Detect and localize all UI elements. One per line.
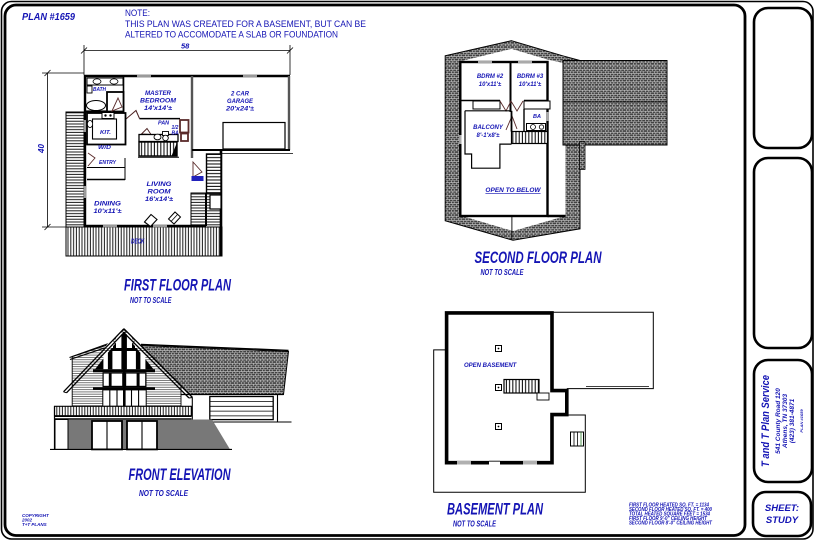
svg-text:40: 40 <box>37 144 46 154</box>
svg-text:20'x24'±: 20'x24'± <box>225 106 255 113</box>
svg-text:NOTE:: NOTE: <box>125 8 150 18</box>
svg-text:BATH: BATH <box>93 87 107 93</box>
svg-text:10'x11'±: 10'x11'± <box>519 82 542 88</box>
svg-text:KIT.: KIT. <box>100 130 112 136</box>
svg-text:BALCONY: BALCONY <box>473 125 504 131</box>
svg-text:OPEN TO BELOW: OPEN TO BELOW <box>485 187 541 194</box>
svg-text:Athens, TN 37303: Athens, TN 37303 <box>782 394 789 450</box>
svg-text:THIS PLAN WAS CREATED FOR A BA: THIS PLAN WAS CREATED FOR A BASEMENT, BU… <box>125 19 366 29</box>
svg-text:ALTERED TO ACCOMODATE A SLAB O: ALTERED TO ACCOMODATE A SLAB OR FOUNDATI… <box>125 30 338 40</box>
svg-text:BDRM #3: BDRM #3 <box>517 74 544 80</box>
svg-text:NOT TO SCALE: NOT TO SCALE <box>130 296 172 305</box>
svg-text:10'x11'±: 10'x11'± <box>94 208 122 215</box>
svg-text:14'x14'±: 14'x14'± <box>144 105 172 112</box>
svg-text:8'-1'x8'±: 8'-1'x8'± <box>477 133 501 139</box>
svg-text:OPEN BASEMENT: OPEN BASEMENT <box>464 363 518 369</box>
svg-text:SECOND FLOOR PLAN: SECOND FLOOR PLAN <box>475 249 603 267</box>
svg-text:SECOND FLOOR 8'-0" CEILING HEI: SECOND FLOOR 8'-0" CEILING HEIGHT <box>629 521 713 527</box>
svg-text:BASEMENT PLAN: BASEMENT PLAN <box>447 501 544 519</box>
svg-text:10'x11'±: 10'x11'± <box>479 82 502 88</box>
svg-text:W/D: W/D <box>98 145 111 151</box>
svg-text:ROOM: ROOM <box>148 189 172 196</box>
svg-text:MASTER: MASTER <box>145 90 171 97</box>
svg-text:BA: BA <box>533 114 541 120</box>
svg-text:BDRM #2: BDRM #2 <box>477 74 504 80</box>
svg-text:PLAN #1659: PLAN #1659 <box>799 409 804 433</box>
svg-text:NOT TO SCALE: NOT TO SCALE <box>453 520 496 529</box>
svg-text:T+T PLANS: T+T PLANS <box>22 522 47 527</box>
svg-text:2 CAR: 2 CAR <box>230 91 249 98</box>
svg-text:16'x14'±: 16'x14'± <box>145 196 173 203</box>
svg-text:DINING: DINING <box>94 201 121 208</box>
svg-text:BEDROOM: BEDROOM <box>140 98 177 105</box>
svg-text:NOT TO SCALE: NOT TO SCALE <box>139 489 189 498</box>
svg-text:STUDY: STUDY <box>766 515 800 526</box>
svg-text:PAN: PAN <box>158 121 169 127</box>
svg-text:541 County Road 120: 541 County Road 120 <box>775 388 782 454</box>
svg-text:NOT TO SCALE: NOT TO SCALE <box>481 268 524 277</box>
svg-text:DECK: DECK <box>131 239 145 246</box>
svg-text:GARAGE: GARAGE <box>227 98 254 105</box>
svg-text:LIVING: LIVING <box>147 181 172 188</box>
svg-text:58: 58 <box>181 42 190 51</box>
svg-text:FIRST FLOOR PLAN: FIRST FLOOR PLAN <box>124 277 232 295</box>
svg-text:ENTRY: ENTRY <box>99 160 117 166</box>
svg-text:PLAN #1659: PLAN #1659 <box>22 12 75 23</box>
svg-text:SHEET:: SHEET: <box>765 503 799 514</box>
svg-text:T and T Plan Service: T and T Plan Service <box>760 375 772 467</box>
svg-text:(423) 381-4871: (423) 381-4871 <box>789 398 796 443</box>
svg-text:BA: BA <box>172 131 180 137</box>
svg-text:FRONT ELEVATION: FRONT ELEVATION <box>129 466 232 484</box>
